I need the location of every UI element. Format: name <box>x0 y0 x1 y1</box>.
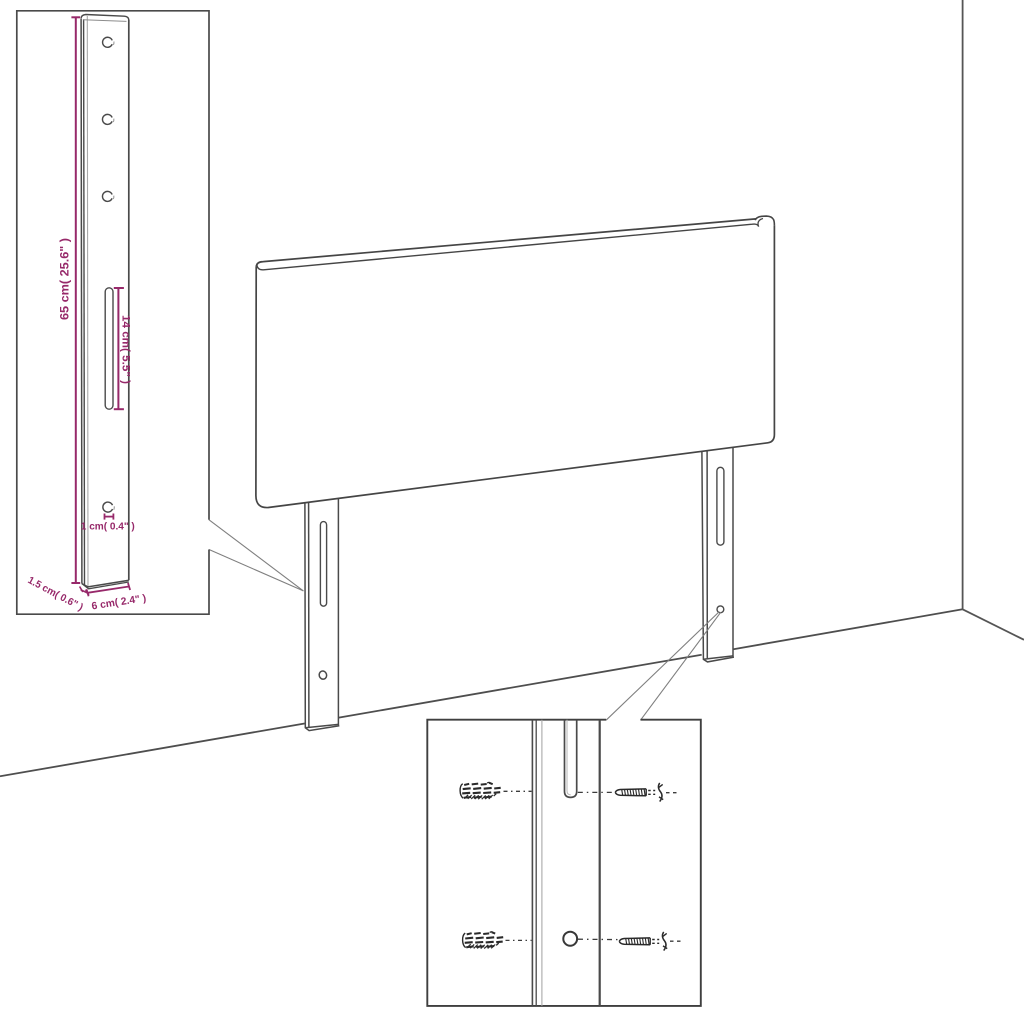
svg-text:6 cm( 2.4" ): 6 cm( 2.4" ) <box>91 593 147 612</box>
svg-text:14 cm( 5.5" ): 14 cm( 5.5" ) <box>119 315 131 384</box>
svg-text:65 cm( 25.6" ): 65 cm( 25.6" ) <box>58 238 72 320</box>
svg-text:1 cm( 0.4" ): 1 cm( 0.4" ) <box>81 522 135 533</box>
